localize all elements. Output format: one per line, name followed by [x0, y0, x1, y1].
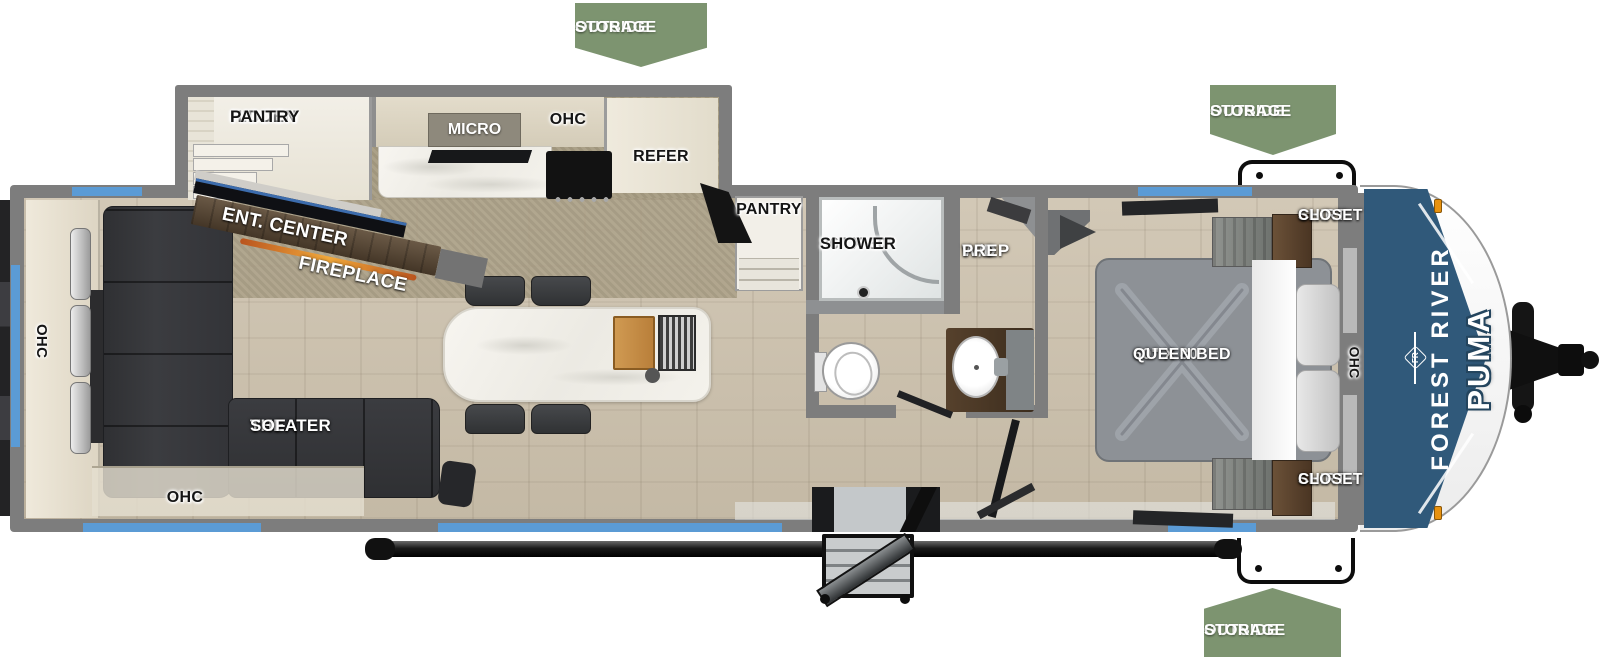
bed-pillow — [1296, 284, 1340, 366]
tray-bolt-icon — [1336, 172, 1343, 179]
rear-window — [11, 265, 20, 447]
bedroom-wall — [1035, 196, 1048, 418]
brand-model-text: PUMA — [1461, 259, 1497, 459]
outside-storage-badge-front: OUTSIDE STORAGE — [1210, 85, 1336, 155]
shirt-closet-bottom-label-line2: CLOSET — [1298, 472, 1363, 489]
tray-bolt-icon — [1335, 565, 1342, 572]
outside-storage-tray-bottom — [1237, 538, 1355, 584]
outside-storage-badge-bottom: OUTSIDE STORAGE — [1204, 588, 1341, 657]
queen-bed-label-line2: QUEEN BED — [1133, 346, 1231, 363]
shower-base-wall — [806, 300, 952, 314]
awning-end-cap — [1214, 539, 1242, 559]
bedside-wardrobe — [1212, 458, 1272, 510]
sofa-console — [70, 228, 91, 300]
step-wheel-icon — [820, 594, 830, 604]
bedroom-overhead-cabinet — [1343, 248, 1357, 333]
stove-knobs — [549, 193, 609, 202]
tray-bolt-icon — [1255, 565, 1262, 572]
pantry-step — [193, 144, 289, 157]
shower-label-line2: SHOWER — [820, 236, 896, 254]
bathroom-cabinet — [1006, 330, 1034, 410]
step-wheel-icon — [900, 594, 910, 604]
window — [1138, 187, 1252, 196]
bedroom-ohc-label: OHC — [1346, 335, 1361, 391]
cooktop-stove — [546, 151, 612, 199]
outside-storage-badge-top-line2: STORAGE — [575, 18, 657, 37]
pantry-drawers — [739, 258, 799, 290]
wd-prep-label-line2: PREP — [962, 242, 1010, 260]
marker-light-icon — [1434, 506, 1442, 520]
bathroom-faucet — [994, 358, 1008, 376]
logo-rule — [1414, 332, 1416, 384]
ent-center-end-panel — [435, 249, 488, 288]
refer-label: REFER — [616, 148, 706, 165]
refrigerator — [604, 98, 718, 193]
sofa-armrest — [437, 460, 477, 508]
ohc-rear-label: OHC — [33, 311, 49, 371]
awning-end-cap — [365, 538, 395, 560]
window — [438, 523, 782, 532]
kitchen-sink — [658, 315, 696, 371]
bathroom-wall — [944, 196, 960, 314]
bedroom-overhead-cabinet — [1343, 395, 1357, 480]
microwave: MICRO — [428, 113, 521, 147]
shower-drain-icon — [859, 288, 868, 297]
island-chair — [465, 404, 525, 434]
outside-storage-badge-front-line2: STORAGE — [1210, 102, 1292, 121]
shirt-closet-top-label-line2: CLOSET — [1298, 208, 1363, 225]
island-chair — [531, 404, 591, 434]
outside-storage-badge-top: OUTSIDE STORAGE — [575, 3, 707, 67]
forest-river-logo: FR — [1403, 248, 1427, 468]
rv-floorplan: FR FOREST RIVER PUMA OHC OHC THEATER SOF… — [0, 0, 1600, 657]
bed-sheet-fold — [1252, 260, 1296, 460]
brand-make-text: FOREST RIVER — [1427, 208, 1455, 508]
theater-sofa-label-line2: SOFA — [250, 417, 298, 435]
outside-storage-badge-bottom-line2: STORAGE — [1204, 621, 1286, 640]
pantry-step — [193, 158, 273, 171]
entry-door — [812, 487, 940, 532]
bathroom-wall — [806, 405, 896, 418]
bed-pillow — [1296, 370, 1340, 452]
micro-label: MICRO — [448, 121, 501, 139]
tray-bolt-icon — [1256, 172, 1263, 179]
awning-roller — [372, 541, 1238, 557]
kitchen-ohc-label: OHC — [533, 111, 603, 128]
hidden-pantry-label-line2: PANTRY — [230, 108, 300, 126]
pantry-label: PANTRY — [733, 201, 805, 218]
cutting-board — [613, 316, 655, 370]
range-hood — [428, 150, 532, 163]
bathroom-sink — [952, 336, 1000, 398]
window — [72, 187, 142, 196]
sofa-console — [70, 305, 91, 377]
ohc-living-label: OHC — [135, 489, 235, 506]
window — [83, 523, 261, 532]
kitchen-faucet — [645, 368, 660, 383]
sofa-console — [70, 382, 91, 454]
